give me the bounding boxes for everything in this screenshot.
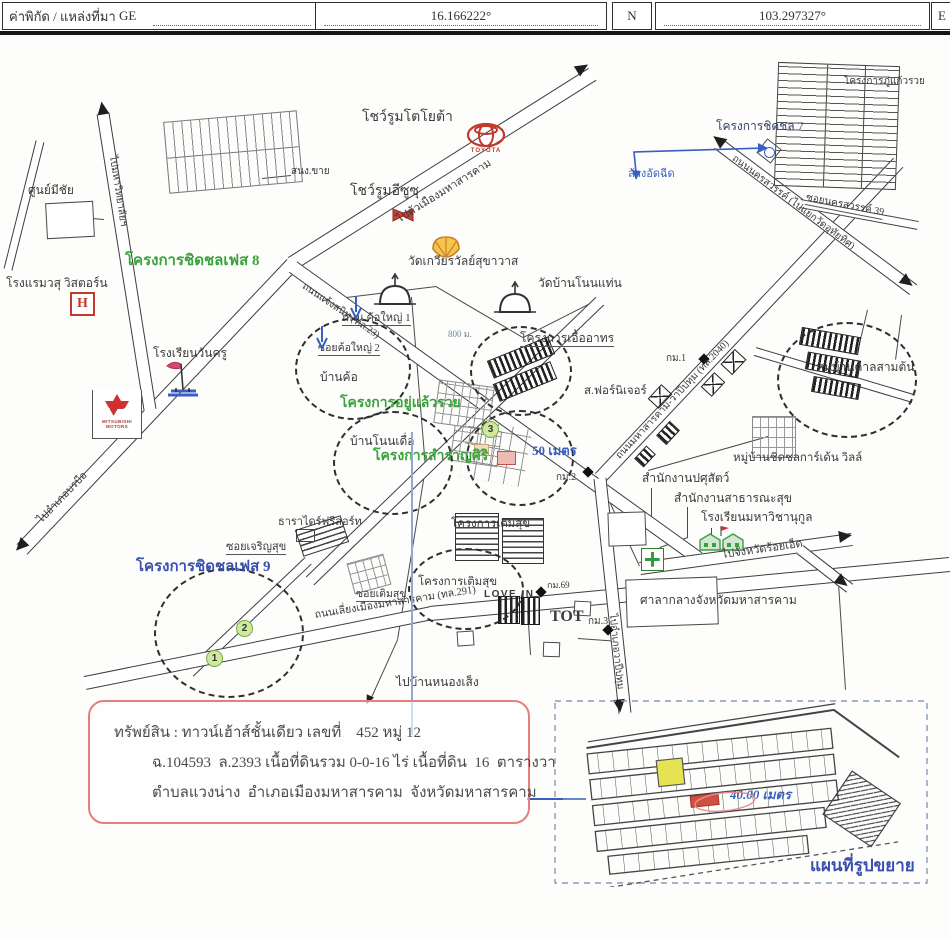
wankru-school-label: โรงเรียนวันครู: [153, 347, 227, 361]
road: [4, 140, 45, 270]
blue-arrow-icon: [348, 294, 364, 320]
road-arrowhead: [838, 529, 853, 543]
latitude-value: 16.166222°: [431, 8, 491, 24]
blue-arrow-icon: [314, 324, 330, 350]
mitsubishi-motors-text: MITSUBISHI MOTORS: [93, 419, 141, 429]
pusat-office-label: สำนักงานปศุสัตว์: [642, 472, 729, 486]
dotted-line: [153, 25, 311, 26]
yu-laew-ruay-label: โครงการอยู่แล้วรวย: [340, 396, 461, 412]
housing-lot-grid: [521, 597, 540, 625]
meechai-building: [45, 201, 95, 239]
longitude-value: 103.297327°: [759, 8, 826, 24]
phase8-label: โครงการชิดชลเฟส 8: [125, 253, 259, 270]
city-hall-label: ศาลากลางจังหวัดมหาสารคาม: [640, 594, 797, 608]
temple-stupa-icon: [492, 280, 538, 316]
sales-office-label: สนง.ขาย: [291, 166, 330, 178]
dist-800-label: 800 ม.: [448, 329, 472, 339]
km3-label: กม.3: [588, 616, 608, 628]
circled-lot-number: 2: [236, 620, 253, 637]
mahawicha-school-label: โรงเรียนมหาวิชานุกูล: [701, 511, 813, 525]
km69-label: กม.69: [547, 580, 570, 590]
phu-kaew-ruay-label: โครงการภู่แก้วรวย: [844, 76, 925, 88]
minor-road-line: [651, 488, 652, 518]
toyota-logo-text: TOYOTA: [466, 148, 506, 154]
health-office-cross-icon: [641, 548, 664, 571]
wat-kwian-label: วัดเกวียรวัลย์สุขาวาส: [408, 255, 518, 269]
longitude-cell: 103.297327°: [655, 2, 930, 30]
furniture-label: ส.ฟอร์นิเจอร์: [584, 385, 647, 398]
wat-nonthaen-label: วัดบ้านโนนแท่น: [538, 277, 622, 291]
uea-athon-label: โครงการเอื้ออาทร: [520, 332, 614, 347]
property-description-box: ทรัพย์สิน : ทาวน์เฮ้าส์ชั้นเดียว เลขที่ …: [88, 700, 530, 824]
isuzu-showroom-label: โชว์รูมอีซูซุ: [350, 184, 419, 200]
car-wash-arrow: [618, 138, 770, 186]
temple-stupa-icon: [372, 272, 418, 308]
meechai-center-label: ศูนย์มีชัย: [28, 184, 74, 198]
phase7-label: โครงการชิดชล 7: [716, 120, 804, 134]
dashed-area-circle: [777, 322, 917, 438]
latitude-cell: 16.166222°: [315, 2, 607, 30]
school-flag-icon: [163, 360, 199, 400]
lat-hemisphere: N: [627, 8, 636, 24]
hotel-wistorn-label: โรงแรมวสุ วิสตอร์น: [6, 277, 108, 291]
header-divider-rule: [0, 31, 950, 35]
shop-box-icon: [634, 445, 656, 467]
phase9-label: โครงการชิดชลเฟส 9: [136, 559, 270, 576]
hospital-icon: H: [70, 292, 95, 316]
toyota-logo-icon: TOYOTA: [466, 122, 506, 154]
small-building: [456, 630, 474, 646]
government-office-building: [607, 511, 646, 546]
dashed-area-circle: [154, 568, 304, 698]
km1-label: กม.1: [666, 353, 686, 365]
property-line-3: ตำบลแวงน่าง อำเภอเมืองมหาสารคาม จังหวัดม…: [152, 780, 537, 804]
scanned-map-document: ค่าพิกัด / แหล่งที่มา GE 16.166222° N 10…: [0, 0, 950, 940]
small-building: [543, 642, 561, 658]
mitsubishi-dealer-icon: MITSUBISHI MOTORS: [92, 390, 142, 439]
to-nong-seng-label: ไปบ้านหนองเส็ง: [396, 676, 479, 690]
love-in-label: LOVE IN: [484, 589, 535, 601]
road-arrowhead: [96, 101, 110, 116]
dotted-line: [664, 25, 921, 26]
lat-hemisphere-cell: N: [612, 2, 652, 30]
health-office-label: สำนักงานสาธารณะสุข: [674, 492, 792, 506]
tot-label: TOT: [550, 608, 584, 626]
circled-lot-number: 3: [482, 421, 499, 438]
housing-lot-grid: [163, 110, 303, 193]
coords-source-value: GE: [119, 8, 136, 24]
soi-charoen-suk-label: ซอยเจริญสุข: [226, 541, 286, 555]
coords-source-label: ค่าพิกัด / แหล่งที่มา: [9, 6, 116, 27]
meters50-label: 50 เมตร: [532, 444, 577, 459]
km2-label: กม.2: [556, 472, 576, 484]
enlarged-plot-map-inset: [552, 695, 932, 887]
property-line-2: ฉ.104593 ล.2393 เนื้อที่ดินรวม 0-0-16 ไร…: [152, 750, 556, 774]
lng-hemisphere-cell: E: [931, 2, 950, 30]
garden-ville-label: หมู่บ้านชิดชลการ์เด้น วิลล์: [733, 452, 862, 465]
samran-siri-label: โครงการสำราญศิริ: [373, 449, 488, 465]
blue-reference-line: [411, 432, 413, 735]
ban-kho-label: บ้านค้อ: [320, 371, 358, 385]
minor-road-line: [369, 640, 398, 702]
circled-lot-number: 1: [206, 650, 223, 667]
lng-hemisphere: E: [938, 8, 946, 24]
to-borabue-road-label: ไปอำเภอบรบือ: [36, 470, 91, 526]
property-line-1: ทรัพย์สิน : ทาวน์เฮ้าส์ชั้นเดียว เลขที่ …: [114, 720, 421, 744]
toyota-showroom-label: โชว์รูมโตโยต้า: [362, 110, 453, 126]
term-suk-a-label: โครงการเติมสุข: [451, 518, 530, 531]
ban-non-duea-label: บ้านโนนเดื่อ: [350, 435, 415, 449]
coords-source-cell: ค่าพิกัด / แหล่งที่มา GE: [2, 2, 320, 30]
minor-road-line: [687, 507, 688, 538]
dotted-line: [324, 25, 598, 26]
ban-kan-samton-label: หมู่บ้านคาลสามต้น: [816, 361, 914, 375]
tara-resort-label: ธาราไดร์ฟรีสอร์ท: [278, 516, 362, 529]
